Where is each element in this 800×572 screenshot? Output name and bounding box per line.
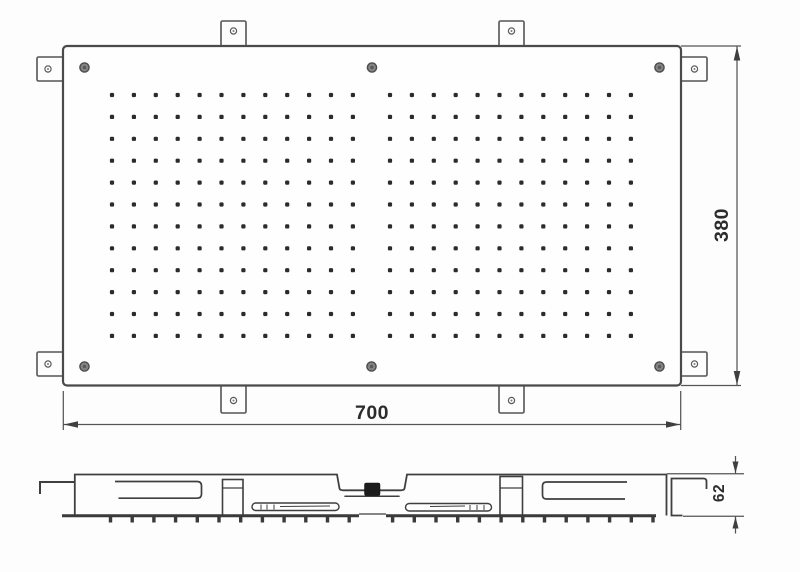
- nozzle-dot: [497, 268, 501, 272]
- nozzle-tick: [434, 517, 437, 523]
- nozzle-tick: [543, 517, 546, 523]
- nozzle-tick: [109, 517, 112, 523]
- nozzle-dot: [629, 181, 633, 185]
- arrow-up-icon: [733, 517, 739, 529]
- tab-hole-center: [47, 68, 49, 70]
- nozzle-dot: [329, 312, 333, 316]
- nozzle-dot: [329, 159, 333, 163]
- nozzle-dot: [541, 312, 545, 316]
- nozzle-dot: [497, 290, 501, 294]
- nozzle-dot: [329, 224, 333, 228]
- nozzle-dot: [629, 115, 633, 119]
- nozzle-dot: [476, 115, 480, 119]
- nozzle-dot: [351, 224, 355, 228]
- nozzle-dot: [388, 181, 392, 185]
- nozzle-dot: [585, 290, 589, 294]
- nozzle-dot: [410, 268, 414, 272]
- side-tab-right: [500, 477, 523, 516]
- nozzle-dot: [132, 115, 136, 119]
- nozzle-dot: [519, 290, 523, 294]
- tab-hole-center: [233, 400, 235, 402]
- nozzle-dot: [410, 181, 414, 185]
- nozzle-tick: [499, 517, 502, 523]
- nozzle-dot: [110, 290, 114, 294]
- nozzle-dot: [263, 268, 267, 272]
- nozzle-tick: [217, 517, 220, 523]
- left-channel-slot: [115, 482, 202, 499]
- screw-bottom-right: [655, 362, 664, 371]
- nozzle-dot: [432, 312, 436, 316]
- nozzle-dot: [307, 159, 311, 163]
- nozzle-dot: [219, 93, 223, 97]
- shower-head-technical-drawing: 700 380: [0, 0, 800, 572]
- nozzle-dot: [519, 312, 523, 316]
- nozzle-dot: [263, 334, 267, 338]
- nozzle-dot: [219, 159, 223, 163]
- nozzle-dot: [497, 115, 501, 119]
- nozzle-dot: [410, 202, 414, 206]
- nozzle-tick: [131, 517, 134, 523]
- nozzle-dot: [629, 93, 633, 97]
- nozzle-dot: [307, 137, 311, 141]
- nozzle-dot: [497, 202, 501, 206]
- nozzle-dot: [132, 268, 136, 272]
- nozzle-dot: [176, 202, 180, 206]
- right-channel-slot: [543, 482, 628, 499]
- nozzle-dot: [110, 312, 114, 316]
- nozzle-tick: [521, 517, 524, 523]
- nozzle-dot: [410, 312, 414, 316]
- nozzle-dot: [388, 159, 392, 163]
- nozzle-dot: [329, 137, 333, 141]
- nozzle-dot: [585, 202, 589, 206]
- nozzle-dot: [263, 312, 267, 316]
- nozzle-dot: [432, 115, 436, 119]
- nozzle-dot: [351, 202, 355, 206]
- nozzle-dot: [563, 334, 567, 338]
- nozzle-dot: [563, 246, 567, 250]
- nozzle-dot: [154, 224, 158, 228]
- nozzle-dot: [388, 93, 392, 97]
- nozzle-dot: [110, 115, 114, 119]
- nozzle-dot: [285, 268, 289, 272]
- nozzle-dot: [110, 181, 114, 185]
- nozzle-dot: [132, 246, 136, 250]
- nozzle-dot: [432, 181, 436, 185]
- nozzle-dot: [454, 312, 458, 316]
- nozzle-dot: [219, 115, 223, 119]
- nozzle-dot: [563, 224, 567, 228]
- nozzle-dot: [198, 115, 202, 119]
- nozzle-dot: [454, 224, 458, 228]
- nozzle-dot: [198, 202, 202, 206]
- nozzle-dot: [497, 93, 501, 97]
- nozzle-dot: [307, 334, 311, 338]
- dimension-width: 700: [63, 391, 680, 430]
- nozzle-dot: [388, 290, 392, 294]
- nozzle-tick: [651, 517, 654, 523]
- nozzle-dot: [388, 202, 392, 206]
- nozzle-dot: [497, 246, 501, 250]
- nozzle-dot: [110, 137, 114, 141]
- nozzle-dot: [241, 224, 245, 228]
- nozzle-dot: [541, 115, 545, 119]
- nozzle-dot: [476, 312, 480, 316]
- nozzle-dot: [476, 93, 480, 97]
- dimension-width-label: 700: [355, 402, 389, 424]
- nozzle-dot: [563, 312, 567, 316]
- nozzle-tick: [282, 517, 285, 523]
- right-hook-bracket: [672, 479, 707, 516]
- nozzle-dot: [607, 181, 611, 185]
- nozzle-dot: [519, 268, 523, 272]
- nozzle-tick: [456, 517, 459, 523]
- nozzle-dot: [110, 246, 114, 250]
- nozzle-dot: [432, 334, 436, 338]
- nozzle-dot: [351, 115, 355, 119]
- nozzle-dot: [241, 159, 245, 163]
- nozzle-dot: [110, 93, 114, 97]
- nozzle-dot: [198, 334, 202, 338]
- nozzle-dot: [607, 93, 611, 97]
- nozzle-dot: [541, 290, 545, 294]
- nozzle-dot: [607, 268, 611, 272]
- nozzle-dot: [241, 115, 245, 119]
- nozzle-dot: [241, 93, 245, 97]
- nozzle-dot: [388, 334, 392, 338]
- nozzle-dot: [607, 312, 611, 316]
- nozzle-dot: [519, 202, 523, 206]
- nozzle-dot: [563, 268, 567, 272]
- tab-hole-center: [511, 30, 513, 32]
- nozzle-dot: [585, 159, 589, 163]
- nozzle-dot: [629, 137, 633, 141]
- arrow-down-icon: [734, 371, 741, 385]
- nozzle-dot: [132, 312, 136, 316]
- nozzle-dot: [629, 224, 633, 228]
- nozzle-dot: [541, 93, 545, 97]
- nozzle-dot: [563, 159, 567, 163]
- nozzle-dot: [432, 246, 436, 250]
- nozzle-tick: [326, 517, 329, 523]
- nozzle-dot: [585, 93, 589, 97]
- nozzle-dot: [285, 312, 289, 316]
- arrow-left-icon: [64, 421, 78, 428]
- screw-top-center: [367, 63, 376, 72]
- nozzle-dot: [410, 224, 414, 228]
- drawing-canvas: 700 380: [0, 0, 800, 572]
- nozzle-dot: [410, 93, 414, 97]
- nozzle-dot: [154, 202, 158, 206]
- nozzle-dot: [432, 202, 436, 206]
- nozzle-dot: [541, 181, 545, 185]
- nozzle-dot: [476, 202, 480, 206]
- nozzle-dot: [154, 268, 158, 272]
- nozzle-tick: [304, 517, 307, 523]
- nozzle-dot: [497, 181, 501, 185]
- water-inlet-block: [365, 483, 381, 496]
- nozzle-dot: [154, 334, 158, 338]
- nozzle-dot: [329, 246, 333, 250]
- nozzle-dot: [198, 181, 202, 185]
- nozzle-dot: [607, 115, 611, 119]
- nozzle-dot: [329, 290, 333, 294]
- nozzle-dot: [285, 290, 289, 294]
- nozzle-dot: [585, 334, 589, 338]
- nozzle-dot: [454, 246, 458, 250]
- nozzle-dot: [176, 334, 180, 338]
- nozzle-dot: [132, 181, 136, 185]
- mounting-tab-bottom-right: [499, 384, 524, 413]
- nozzle-dot: [351, 312, 355, 316]
- nozzle-dot: [351, 93, 355, 97]
- nozzle-dot: [154, 93, 158, 97]
- nozzle-dot: [454, 137, 458, 141]
- nozzle-dot: [219, 246, 223, 250]
- nozzle-dot: [285, 181, 289, 185]
- arrow-right-icon: [666, 421, 680, 428]
- nozzle-tick: [630, 517, 633, 523]
- tab-hole-center: [511, 400, 513, 402]
- mounting-tab-top-left: [221, 21, 246, 48]
- nozzle-dot: [176, 312, 180, 316]
- nozzle-dot: [410, 137, 414, 141]
- nozzle-dot: [519, 115, 523, 119]
- nozzle-dot: [607, 224, 611, 228]
- nozzle-dot: [351, 137, 355, 141]
- nozzle-dot: [154, 246, 158, 250]
- nozzle-dot: [285, 246, 289, 250]
- nozzle-dot: [607, 290, 611, 294]
- nozzle-dot: [198, 268, 202, 272]
- nozzle-dot: [541, 159, 545, 163]
- nozzle-dot: [132, 93, 136, 97]
- nozzle-dot: [154, 115, 158, 119]
- nozzle-dot: [263, 137, 267, 141]
- nozzle-dot: [154, 290, 158, 294]
- nozzle-tick: [391, 517, 394, 523]
- nozzle-dot: [198, 159, 202, 163]
- nozzle-tick: [196, 517, 199, 523]
- dimension-depth: 62: [667, 456, 744, 534]
- nozzle-tick: [348, 517, 351, 523]
- nozzle-dot: [176, 115, 180, 119]
- nozzle-tick: [565, 517, 568, 523]
- nozzle-dot: [454, 334, 458, 338]
- nozzle-dot: [432, 224, 436, 228]
- nozzle-dot: [329, 181, 333, 185]
- nozzle-dot: [132, 137, 136, 141]
- nozzle-dot: [110, 268, 114, 272]
- nozzle-dot: [263, 202, 267, 206]
- nozzle-dot: [285, 137, 289, 141]
- mounting-tab-right-upper: [679, 57, 707, 81]
- nozzle-dot: [519, 246, 523, 250]
- nozzle-dot: [388, 115, 392, 119]
- nozzle-dot: [219, 290, 223, 294]
- nozzle-dot: [219, 312, 223, 316]
- nozzle-dot: [629, 312, 633, 316]
- nozzle-dot: [263, 290, 267, 294]
- mounting-tab-left-upper: [37, 57, 65, 81]
- nozzle-dot: [263, 159, 267, 163]
- nozzle-dot: [241, 137, 245, 141]
- nozzle-dot: [454, 268, 458, 272]
- nozzle-dot: [497, 334, 501, 338]
- tab-hole-center: [694, 363, 696, 365]
- nozzle-dot: [219, 202, 223, 206]
- side-view: 62: [40, 456, 744, 534]
- nozzle-dot: [219, 224, 223, 228]
- nozzle-dot: [351, 334, 355, 338]
- tab-hole-center: [47, 363, 49, 365]
- nozzle-dot: [476, 224, 480, 228]
- nozzle-dot: [285, 202, 289, 206]
- nozzle-dot: [629, 268, 633, 272]
- nozzle-dot: [110, 159, 114, 163]
- nozzle-dot: [176, 93, 180, 97]
- nozzle-dot: [585, 224, 589, 228]
- nozzle-dot: [629, 290, 633, 294]
- nozzle-dot: [454, 93, 458, 97]
- nozzle-dot: [432, 159, 436, 163]
- nozzle-tick: [478, 517, 481, 523]
- nozzle-dot: [519, 334, 523, 338]
- spray-bar-left: [252, 503, 339, 511]
- nozzle-dot: [176, 246, 180, 250]
- nozzle-dot: [585, 268, 589, 272]
- nozzle-dot: [307, 181, 311, 185]
- nozzle-dot: [497, 224, 501, 228]
- nozzle-dot: [410, 334, 414, 338]
- nozzle-dot: [110, 224, 114, 228]
- dimension-depth-label: 62: [711, 484, 728, 502]
- nozzle-dot: [432, 268, 436, 272]
- nozzle-dot: [176, 268, 180, 272]
- nozzle-dot: [285, 159, 289, 163]
- nozzle-dot: [629, 202, 633, 206]
- nozzle-dot: [629, 159, 633, 163]
- mounting-tab-bottom-left: [221, 384, 246, 413]
- nozzle-dot: [432, 290, 436, 294]
- screw-bottom-center: [367, 362, 376, 371]
- nozzle-dot: [629, 334, 633, 338]
- mounting-tab-left-lower: [37, 352, 65, 376]
- nozzle-dot: [198, 246, 202, 250]
- nozzle-dot: [454, 181, 458, 185]
- nozzle-dot: [241, 268, 245, 272]
- nozzle-dot: [497, 159, 501, 163]
- nozzle-dot: [476, 268, 480, 272]
- nozzle-dot: [176, 159, 180, 163]
- nozzle-dot: [263, 246, 267, 250]
- nozzle-dot: [454, 115, 458, 119]
- nozzle-dot: [454, 159, 458, 163]
- nozzle-dot: [154, 312, 158, 316]
- nozzle-dot: [607, 137, 611, 141]
- nozzle-dot: [176, 181, 180, 185]
- nozzle-dot: [307, 312, 311, 316]
- nozzle-dot: [432, 93, 436, 97]
- nozzle-dot: [388, 268, 392, 272]
- nozzle-dot: [263, 93, 267, 97]
- arrow-up-icon: [734, 47, 741, 61]
- arrow-down-icon: [733, 462, 739, 474]
- nozzle-dot: [329, 268, 333, 272]
- nozzle-dot: [585, 312, 589, 316]
- nozzle-dot: [263, 224, 267, 228]
- nozzle-dot: [497, 137, 501, 141]
- nozzle-dot: [285, 224, 289, 228]
- nozzle-ticks: [109, 517, 655, 523]
- nozzle-dot: [241, 290, 245, 294]
- nozzle-dot: [110, 334, 114, 338]
- nozzle-dot: [285, 115, 289, 119]
- nozzle-dot: [351, 181, 355, 185]
- nozzle-dot: [241, 312, 245, 316]
- nozzle-dot: [176, 137, 180, 141]
- nozzle-dot: [541, 202, 545, 206]
- nozzle-dot: [351, 268, 355, 272]
- nozzle-dot: [519, 137, 523, 141]
- nozzle-dot: [563, 181, 567, 185]
- dimension-height: 380: [681, 46, 741, 386]
- nozzle-tick: [586, 517, 589, 523]
- spray-bar-right: [406, 504, 492, 512]
- nozzle-tick: [174, 517, 177, 523]
- screw-bottom-left: [80, 362, 89, 371]
- nozzle-dot: [629, 246, 633, 250]
- nozzle-dot: [454, 290, 458, 294]
- nozzle-dot: [388, 312, 392, 316]
- nozzle-dot: [241, 181, 245, 185]
- nozzle-dot: [307, 115, 311, 119]
- nozzle-dot: [563, 115, 567, 119]
- nozzle-dot: [541, 137, 545, 141]
- nozzle-dot: [329, 93, 333, 97]
- nozzle-dot: [154, 137, 158, 141]
- nozzle-dot: [219, 137, 223, 141]
- nozzle-dot: [241, 246, 245, 250]
- nozzle-dot: [563, 93, 567, 97]
- nozzle-dot: [388, 137, 392, 141]
- nozzle-dot: [198, 93, 202, 97]
- nozzle-dot: [585, 246, 589, 250]
- nozzle-dot: [241, 202, 245, 206]
- nozzle-dot: [351, 246, 355, 250]
- nozzle-dot: [154, 159, 158, 163]
- dimension-height-label: 380: [711, 208, 733, 242]
- screw-top-right: [655, 63, 664, 72]
- nozzle-dot: [132, 202, 136, 206]
- nozzle-dot: [541, 334, 545, 338]
- mounting-tab-top-right: [499, 21, 524, 48]
- nozzle-dot: [132, 159, 136, 163]
- nozzle-dot: [110, 202, 114, 206]
- nozzle-dot: [432, 137, 436, 141]
- nozzle-dot: [176, 224, 180, 228]
- nozzle-dot: [198, 224, 202, 228]
- nozzle-dot: [263, 115, 267, 119]
- nozzle-dot: [410, 115, 414, 119]
- tab-hole-center: [233, 30, 235, 32]
- left-hook-bracket: [40, 482, 74, 494]
- nozzle-tick: [608, 517, 611, 523]
- nozzle-dot: [388, 224, 392, 228]
- nozzle-dot: [607, 246, 611, 250]
- nozzle-dot: [219, 181, 223, 185]
- nozzle-dot: [476, 246, 480, 250]
